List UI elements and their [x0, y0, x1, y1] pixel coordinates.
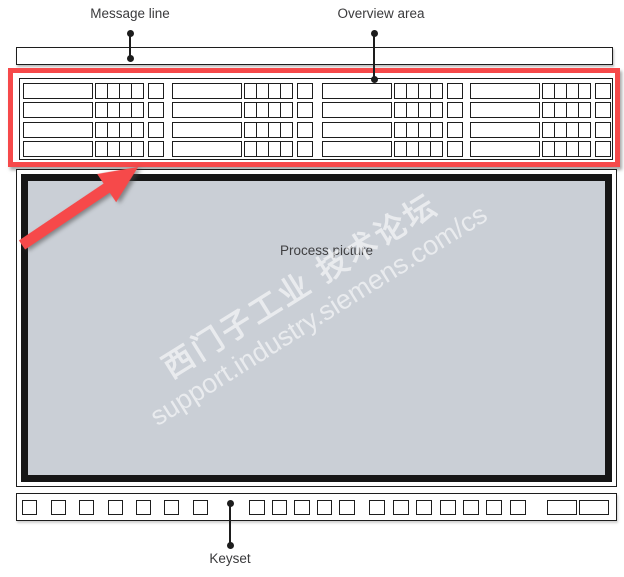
overview-alarm-grid — [244, 83, 293, 99]
alarm-cell — [280, 142, 292, 156]
alarm-cell — [96, 103, 107, 117]
alarm-cell — [107, 123, 119, 137]
overview-extra-cell — [447, 141, 463, 157]
overview-alarm-grid — [394, 83, 443, 99]
alarm-cell — [268, 84, 280, 98]
overview-picture-button — [23, 122, 93, 138]
overview-group — [23, 83, 164, 159]
message-line-bar — [16, 47, 613, 65]
alarm-cell — [578, 84, 590, 98]
overview-extra-cell — [447, 122, 463, 138]
overview-extra-cell — [148, 102, 164, 118]
alarm-cell — [119, 84, 131, 98]
overview-row — [23, 122, 164, 138]
alarm-cell — [131, 103, 143, 117]
figure-canvas: Message line Overview area Process pictu… — [0, 0, 624, 577]
alarm-cell — [268, 103, 280, 117]
spaced-key — [22, 500, 37, 515]
alarm-cell — [566, 103, 578, 117]
group-a-key — [339, 500, 355, 515]
overview-alarm-grid — [244, 141, 293, 157]
alarm-cell — [406, 142, 418, 156]
alarm-cell — [245, 123, 256, 137]
overview-alarm-grid — [95, 83, 144, 99]
alarm-cell — [131, 84, 143, 98]
alarm-cell — [256, 142, 268, 156]
overview-row — [172, 102, 313, 118]
alarm-cell — [418, 84, 430, 98]
leader-line — [373, 34, 375, 80]
alarm-cell — [554, 142, 566, 156]
alarm-cell — [430, 103, 442, 117]
overview-alarm-grid — [95, 102, 144, 118]
leader-line — [229, 503, 231, 545]
alarm-cell — [430, 84, 442, 98]
group-b-key — [510, 500, 526, 515]
alarm-cell — [418, 123, 430, 137]
overview-extra-cell — [297, 141, 313, 157]
keyset-label: Keyset — [209, 551, 250, 566]
overview-alarm-grid — [394, 141, 443, 157]
overview-picture-button — [470, 83, 540, 99]
overview-extra-cell — [595, 83, 611, 99]
alarm-cell — [566, 142, 578, 156]
alarm-cell — [280, 103, 292, 117]
overview-area-label: Overview area — [337, 6, 424, 21]
alarm-cell — [554, 123, 566, 137]
wide-key — [579, 500, 609, 515]
overview-extra-cell — [595, 102, 611, 118]
overview-picture-button — [322, 141, 392, 157]
alarm-cell — [543, 84, 554, 98]
overview-extra-cell — [297, 122, 313, 138]
alarm-cell — [566, 84, 578, 98]
group-b-key — [486, 500, 502, 515]
overview-area — [19, 78, 613, 161]
alarm-cell — [245, 142, 256, 156]
spaced-key — [136, 500, 151, 515]
overview-row — [470, 102, 611, 118]
alarm-cell — [418, 142, 430, 156]
overview-extra-cell — [297, 102, 313, 118]
overview-alarm-grid — [394, 102, 443, 118]
overview-row — [470, 122, 611, 138]
overview-extra-cell — [447, 83, 463, 99]
alarm-cell — [256, 84, 268, 98]
alarm-cell — [578, 142, 590, 156]
overview-group — [172, 83, 313, 159]
group-b-key — [463, 500, 479, 515]
alarm-cell — [395, 84, 406, 98]
overview-picture-button — [470, 102, 540, 118]
spaced-key — [164, 500, 179, 515]
alarm-cell — [119, 123, 131, 137]
spaced-key — [193, 500, 208, 515]
alarm-cell — [280, 84, 292, 98]
keyset-bar — [16, 493, 617, 521]
overview-alarm-grid — [244, 102, 293, 118]
alarm-cell — [131, 123, 143, 137]
overview-picture-button — [23, 83, 93, 99]
alarm-cell — [395, 103, 406, 117]
overview-extra-cell — [148, 83, 164, 99]
alarm-cell — [406, 103, 418, 117]
spaced-key — [51, 500, 66, 515]
overview-row — [23, 102, 164, 118]
alarm-cell — [418, 103, 430, 117]
overview-extra-cell — [148, 122, 164, 138]
alarm-cell — [256, 103, 268, 117]
alarm-cell — [406, 123, 418, 137]
overview-row — [23, 83, 164, 99]
group-a-key — [294, 500, 310, 515]
alarm-cell — [245, 84, 256, 98]
overview-row — [470, 141, 611, 157]
overview-alarm-grid — [542, 102, 591, 118]
spaced-key — [79, 500, 94, 515]
alarm-cell — [578, 103, 590, 117]
alarm-cell — [107, 84, 119, 98]
overview-row — [322, 141, 463, 157]
alarm-cell — [268, 123, 280, 137]
group-a-key — [272, 500, 288, 515]
alarm-cell — [566, 123, 578, 137]
overview-group — [322, 83, 463, 159]
group-b-key — [369, 500, 385, 515]
overview-picture-button — [23, 102, 93, 118]
overview-group — [470, 83, 611, 159]
overview-picture-button — [470, 122, 540, 138]
alarm-cell — [107, 103, 119, 117]
alarm-cell — [245, 103, 256, 117]
overview-picture-button — [470, 141, 540, 157]
alarm-cell — [280, 123, 292, 137]
group-a-key — [249, 500, 265, 515]
overview-picture-button — [172, 102, 242, 118]
alarm-cell — [395, 123, 406, 137]
message-line-label: Message line — [90, 6, 170, 21]
overview-row — [172, 122, 313, 138]
overview-row — [470, 83, 611, 99]
alarm-cell — [96, 123, 107, 137]
overview-row — [322, 102, 463, 118]
leader-dot — [227, 542, 234, 549]
alarm-cell — [430, 142, 442, 156]
alarm-cell — [543, 123, 554, 137]
overview-row — [322, 83, 463, 99]
alarm-cell — [543, 103, 554, 117]
alarm-cell — [119, 103, 131, 117]
alarm-cell — [543, 142, 554, 156]
overview-alarm-grid — [244, 122, 293, 138]
overview-extra-cell — [447, 102, 463, 118]
overview-alarm-grid — [542, 141, 591, 157]
overview-extra-cell — [595, 122, 611, 138]
group-b-key — [416, 500, 432, 515]
alarm-cell — [96, 84, 107, 98]
group-a-key — [317, 500, 333, 515]
process-picture-label: Process picture — [280, 243, 373, 258]
leader-dot — [371, 76, 378, 83]
alarm-cell — [430, 123, 442, 137]
alarm-cell — [406, 84, 418, 98]
overview-extra-cell — [297, 83, 313, 99]
overview-picture-button — [172, 83, 242, 99]
overview-picture-button — [172, 122, 242, 138]
leader-dot — [127, 55, 134, 62]
alarm-cell — [554, 84, 566, 98]
alarm-cell — [395, 142, 406, 156]
alarm-cell — [554, 103, 566, 117]
group-b-key — [440, 500, 456, 515]
overview-picture-button — [322, 122, 392, 138]
spaced-key — [108, 500, 123, 515]
overview-alarm-grid — [542, 83, 591, 99]
overview-row — [322, 122, 463, 138]
group-b-key — [393, 500, 409, 515]
red-arrow-annotation — [0, 150, 200, 280]
overview-alarm-grid — [394, 122, 443, 138]
overview-picture-button — [322, 102, 392, 118]
overview-alarm-grid — [95, 122, 144, 138]
overview-extra-cell — [595, 141, 611, 157]
overview-alarm-grid — [542, 122, 591, 138]
overview-picture-button — [322, 83, 392, 99]
wide-key — [547, 500, 577, 515]
overview-row — [172, 83, 313, 99]
alarm-cell — [256, 123, 268, 137]
alarm-cell — [268, 142, 280, 156]
alarm-cell — [578, 123, 590, 137]
